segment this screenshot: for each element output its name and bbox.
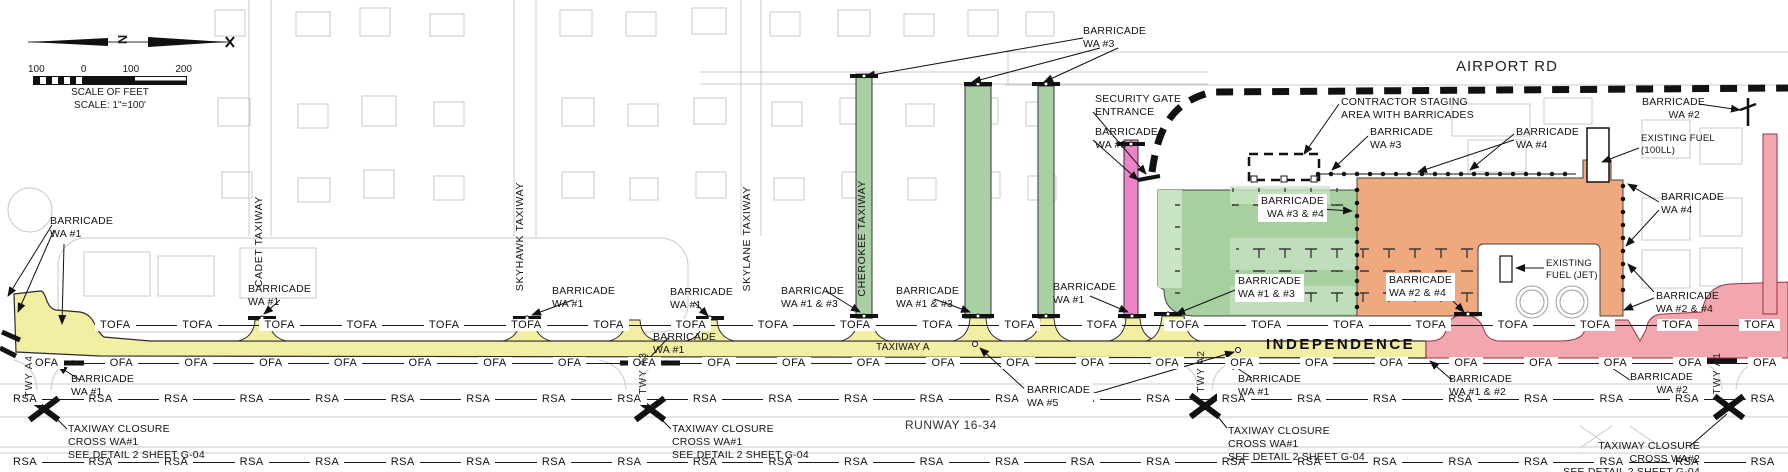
magenta-connector-strip[interactable] [1124,140,1138,318]
airport-rd-label: AIRPORT RD [1456,58,1558,75]
callout-existing-fuel-100ll: EXISTING FUEL (100LL) [1641,133,1715,156]
rsa-label: RSA [1443,456,1477,468]
tofa-label: TOFA [835,319,876,331]
ofa-label: OFA [30,357,64,369]
rsa-label: RSA [1141,456,1175,468]
ofa-label: OFA [777,357,811,369]
scale-tick: 0 [81,64,87,75]
rsa-label: RSA [1594,393,1628,405]
fuel-jet-pump [1500,256,1512,282]
ofa-label: OFA [1076,357,1110,369]
tofa-label: TOFA [424,319,465,331]
ofa-label: OFA [1375,357,1409,369]
ofa-label: OFA [179,357,213,369]
callout-barricade-wa5: BARRICADE WA #5 [1024,383,1093,411]
note-taxiway-closure-wa1: TAXIWAY CLOSURE CROSS WA#1 SEE DETAIL 2 … [68,423,205,461]
cherokee-taxiway-label: CHEROKEE TAXIWAY [856,180,868,297]
independence-label: INDEPENDENCE [1266,336,1415,353]
rsa-label: RSA [839,456,873,468]
fuel-100ll-structure [1587,128,1609,182]
rsa-label: RSA [537,393,571,405]
tofa-label: TOFA [588,319,629,331]
callout-barricade-wa1: BARRICADE WA #1 [552,285,615,311]
callout-barricade-wa1-3: BARRICADE WA #1 & #3 [1235,274,1304,302]
tofa-label: TOFA [999,319,1040,331]
scale-bar: 100 0 100 200 SCALE OF FEET SCALE: 1"=10… [28,64,192,112]
callout-barricade-wa2-4: BARRICADE WA #2 & #4 [1386,273,1455,301]
ofa-label: OFA [329,357,363,369]
ofa-label: OFA [1151,357,1185,369]
ofa-label: OFA [1225,357,1259,369]
scale-bar-graphic [33,76,187,85]
callout-barricade-wa1: BARRICADE WA #1 [1238,373,1301,399]
rsa-label: RSA [310,393,344,405]
closure-zones [14,74,1788,358]
twy-a4-label: TWY A4 [24,355,35,398]
callout-barricade-wa1-2: BARRICADE WA #1 & #2 [1449,373,1512,399]
rsa-label: RSA [990,456,1024,468]
tofa-label: TOFA [1411,319,1452,331]
rsa-label: RSA [310,456,344,468]
rsa-label: RSA [763,393,797,405]
pink-connector-strip[interactable] [1763,134,1777,314]
tofa-label: TOFA [1246,319,1287,331]
cadet-taxiway-label: CADET TAXIWAY [253,196,265,287]
rsa-label: RSA [8,456,42,468]
callout-barricade-wa3-4: BARRICADE WA #3 & #4 [1258,194,1327,222]
security-gate-mark [1138,176,1160,180]
note-taxiway-closure-wa1: TAXIWAY CLOSURE CROSS WA#1 SEE DETAIL 2 … [1228,425,1365,463]
scale-caption: SCALE OF FEET SCALE: 1"=100' [28,87,192,112]
callout-barricade-wa4: BARRICADE WA #4 [1661,191,1724,217]
tofa-label: TOFA [342,319,383,331]
ofa-label: OFA [1748,357,1782,369]
ofa-label: OFA [1524,357,1558,369]
ofa-label: OFA [105,357,139,369]
tofa-label: TOFA [1739,319,1780,331]
taxiway-closure-plan: TOFATOFATOFATOFATOFATOFATOFATOFATOFATOFA… [0,0,1788,472]
rsa-label: RSA [612,393,646,405]
callout-contractor-staging: CONTRACTOR STAGING AREA WITH BARRICADES [1341,96,1474,122]
rsa-label: RSA [1519,393,1553,405]
tofa-label: TOFA [1328,319,1369,331]
note-taxiway-closure-wa1: TAXIWAY CLOSURE CROSS WA#1 SEE DETAIL 2 … [672,423,809,461]
tofa-label: TOFA [177,319,218,331]
ofa-label: OFA [852,357,886,369]
skylane-taxiway-label: SKYLANE TAXIWAY [741,186,753,291]
rsa-label: RSA [1746,456,1780,468]
rsa-label: RSA [612,456,646,468]
callout-barricade-wa2: BARRICADE WA #2 [1642,96,1700,122]
rsa-label: RSA [1066,456,1100,468]
ofa-label: OFA [1001,357,1035,369]
callout-barricade-wa1: BARRICADE WA #1 [50,215,113,241]
rsa-lower-line-row: RSARSARSARSARSARSARSARSARSARSARSARSARSAR… [8,455,1780,469]
tofa-label: TOFA [95,319,136,331]
tofa-label: TOFA [259,319,300,331]
scale-tick: 100 [28,64,45,75]
rsa-label: RSA [461,393,495,405]
rsa-label: RSA [235,393,269,405]
ofa-label: OFA [254,357,288,369]
twy-a1-label: TWY A1 [1712,352,1723,395]
scale-tick: 100 [123,64,140,75]
callout-barricade-wa1: BARRICADE WA #1 [71,373,134,399]
rsa-label: RSA [537,456,571,468]
rsa-label: RSA [1368,456,1402,468]
ofa-label: OFA [404,357,438,369]
rsa-label: RSA [688,393,722,405]
north-arrow [28,37,234,47]
ofa-line-row: OFAOFAOFAOFAOFAOFAOFAOFAOFAOFAOFAOFAOFAO… [30,356,1782,370]
tofa-label: TOFA [506,319,547,331]
callout-barricade-wa3: BARRICADE WA #3 [1370,126,1433,152]
tofa-label: TOFA [753,319,794,331]
ofa-label: OFA [1673,357,1707,369]
callout-barricade-wa3: BARRICADE WA #3 [1095,126,1158,152]
note-taxiway-closure-wa2: TAXIWAY CLOSURE CROSS WA#2 SEE DETAIL 2 … [1540,440,1700,472]
tofa-label: TOFA [1493,319,1534,331]
rsa-label: RSA [1368,393,1402,405]
rsa-label: RSA [386,393,420,405]
callout-security-gate: SECURITY GATE ENTRANCE [1095,93,1181,119]
green-connector-strips[interactable] [856,74,1054,318]
tofa-label: TOFA [1657,319,1698,331]
ofa-label: OFA [1300,357,1334,369]
tofa-label: TOFA [917,319,958,331]
ofa-label: OFA [478,357,512,369]
gate-cross-mark [1740,98,1756,126]
ofa-label: OFA [702,357,736,369]
twy-a2-label: TWY A2 [1196,350,1207,393]
callout-barricade-wa3: BARRICADE WA #3 [1083,25,1146,51]
rsa-label: RSA [386,456,420,468]
callout-barricade-wa1: BARRICADE WA #1 [1053,281,1116,307]
taxiway-a-label: TAXIWAY A [876,342,930,354]
tofa-label: TOFA [1082,319,1123,331]
ofa-label: OFA [1449,357,1483,369]
tofa-label: TOFA [1575,319,1616,331]
callout-barricade-wa1-3: BARRICADE WA #1 & #3 [781,285,844,311]
rsa-label: RSA [915,393,949,405]
rsa-label: RSA [1141,393,1175,405]
callout-barricade-wa2-4: BARRICADE WA #2 & #4 [1656,290,1719,316]
rsa-label: RSA [159,393,193,405]
rsa-label: RSA [461,456,495,468]
fuel-tanks [1516,286,1588,318]
twy-a3-label: TWY A3 [638,352,649,395]
callout-barricade-wa1-3: BARRICADE WA #1 & #3 [896,285,959,311]
callout-barricade-wa1: BARRICADE WA #1 [670,286,733,312]
tofa-label: TOFA [671,319,712,331]
callout-existing-fuel-jet: EXISTING FUEL (JET) [1546,258,1598,281]
rsa-label: RSA [235,456,269,468]
callout-barricade-wa4: BARRICADE WA #4 [1516,126,1579,152]
runway-label: RUNWAY 16-34 [905,418,997,432]
scale-ticks: 100 0 100 200 [28,64,192,75]
rsa-label: RSA [1746,393,1780,405]
tofa-label: TOFA [1164,319,1205,331]
north-label: N [115,35,130,44]
rsa-label: RSA [990,393,1024,405]
tofa-line-row: TOFATOFATOFATOFATOFATOFATOFATOFATOFATOFA… [95,318,1780,332]
rsa-label: RSA [839,393,873,405]
rsa-upper-line-row: RSARSARSARSARSARSARSARSARSARSARSARSARSAR… [8,392,1780,406]
skyhawk-taxiway-label: SKYHAWK TAXIWAY [514,182,526,291]
callout-barricade-wa1: BARRICADE WA #1 [653,331,716,357]
callout-barricade-wa2: BARRICADE WA #2 [1630,371,1688,397]
rsa-label: RSA [915,456,949,468]
ofa-label: OFA [1599,357,1633,369]
ofa-label: OFA [926,357,960,369]
ofa-label: OFA [553,357,587,369]
scale-tick: 200 [175,64,192,75]
